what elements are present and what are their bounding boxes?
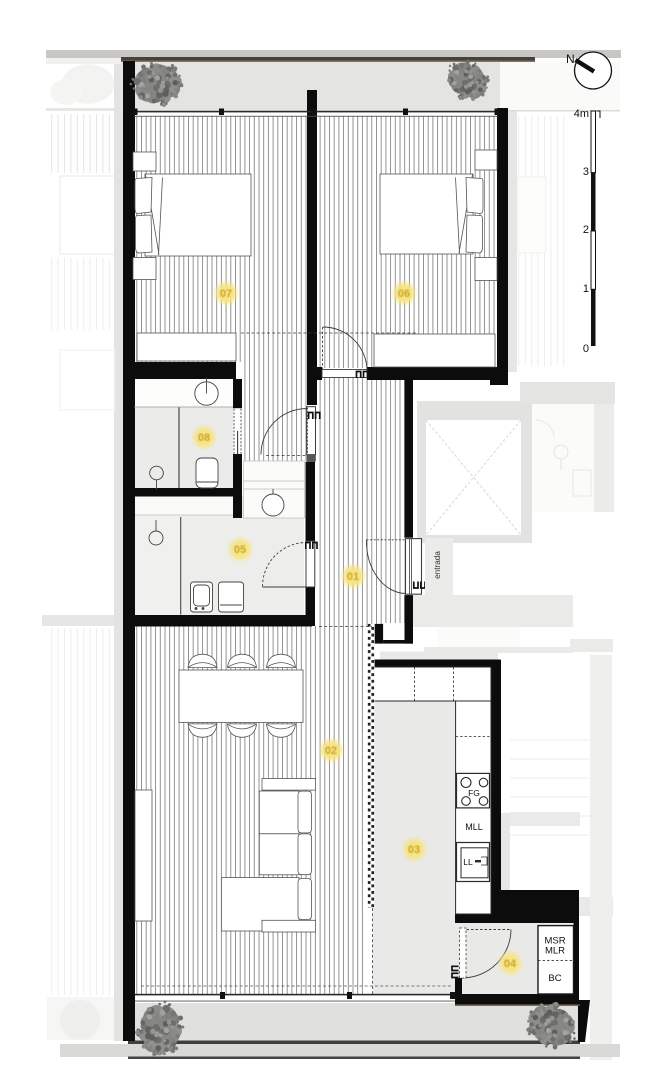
svg-text:03: 03 <box>408 844 420 856</box>
svg-text:2: 2 <box>583 224 589 236</box>
svg-text:05: 05 <box>234 544 246 556</box>
svg-text:entrada: entrada <box>433 551 442 579</box>
svg-text:02: 02 <box>325 745 337 757</box>
svg-text:4m: 4m <box>574 108 589 120</box>
svg-text:LL: LL <box>463 857 473 867</box>
svg-text:06: 06 <box>398 288 410 300</box>
svg-text:N: N <box>566 52 575 66</box>
svg-text:BC: BC <box>548 973 561 984</box>
svg-text:FG: FG <box>468 788 480 798</box>
svg-text:04: 04 <box>504 958 517 970</box>
svg-text:1: 1 <box>583 283 589 295</box>
svg-text:MLR: MLR <box>545 946 565 957</box>
svg-text:01: 01 <box>347 571 359 583</box>
svg-text:MLL: MLL <box>465 822 483 832</box>
svg-text:3: 3 <box>583 166 589 178</box>
svg-text:07: 07 <box>220 288 232 300</box>
svg-text:0: 0 <box>583 343 589 355</box>
svg-text:08: 08 <box>198 432 210 444</box>
